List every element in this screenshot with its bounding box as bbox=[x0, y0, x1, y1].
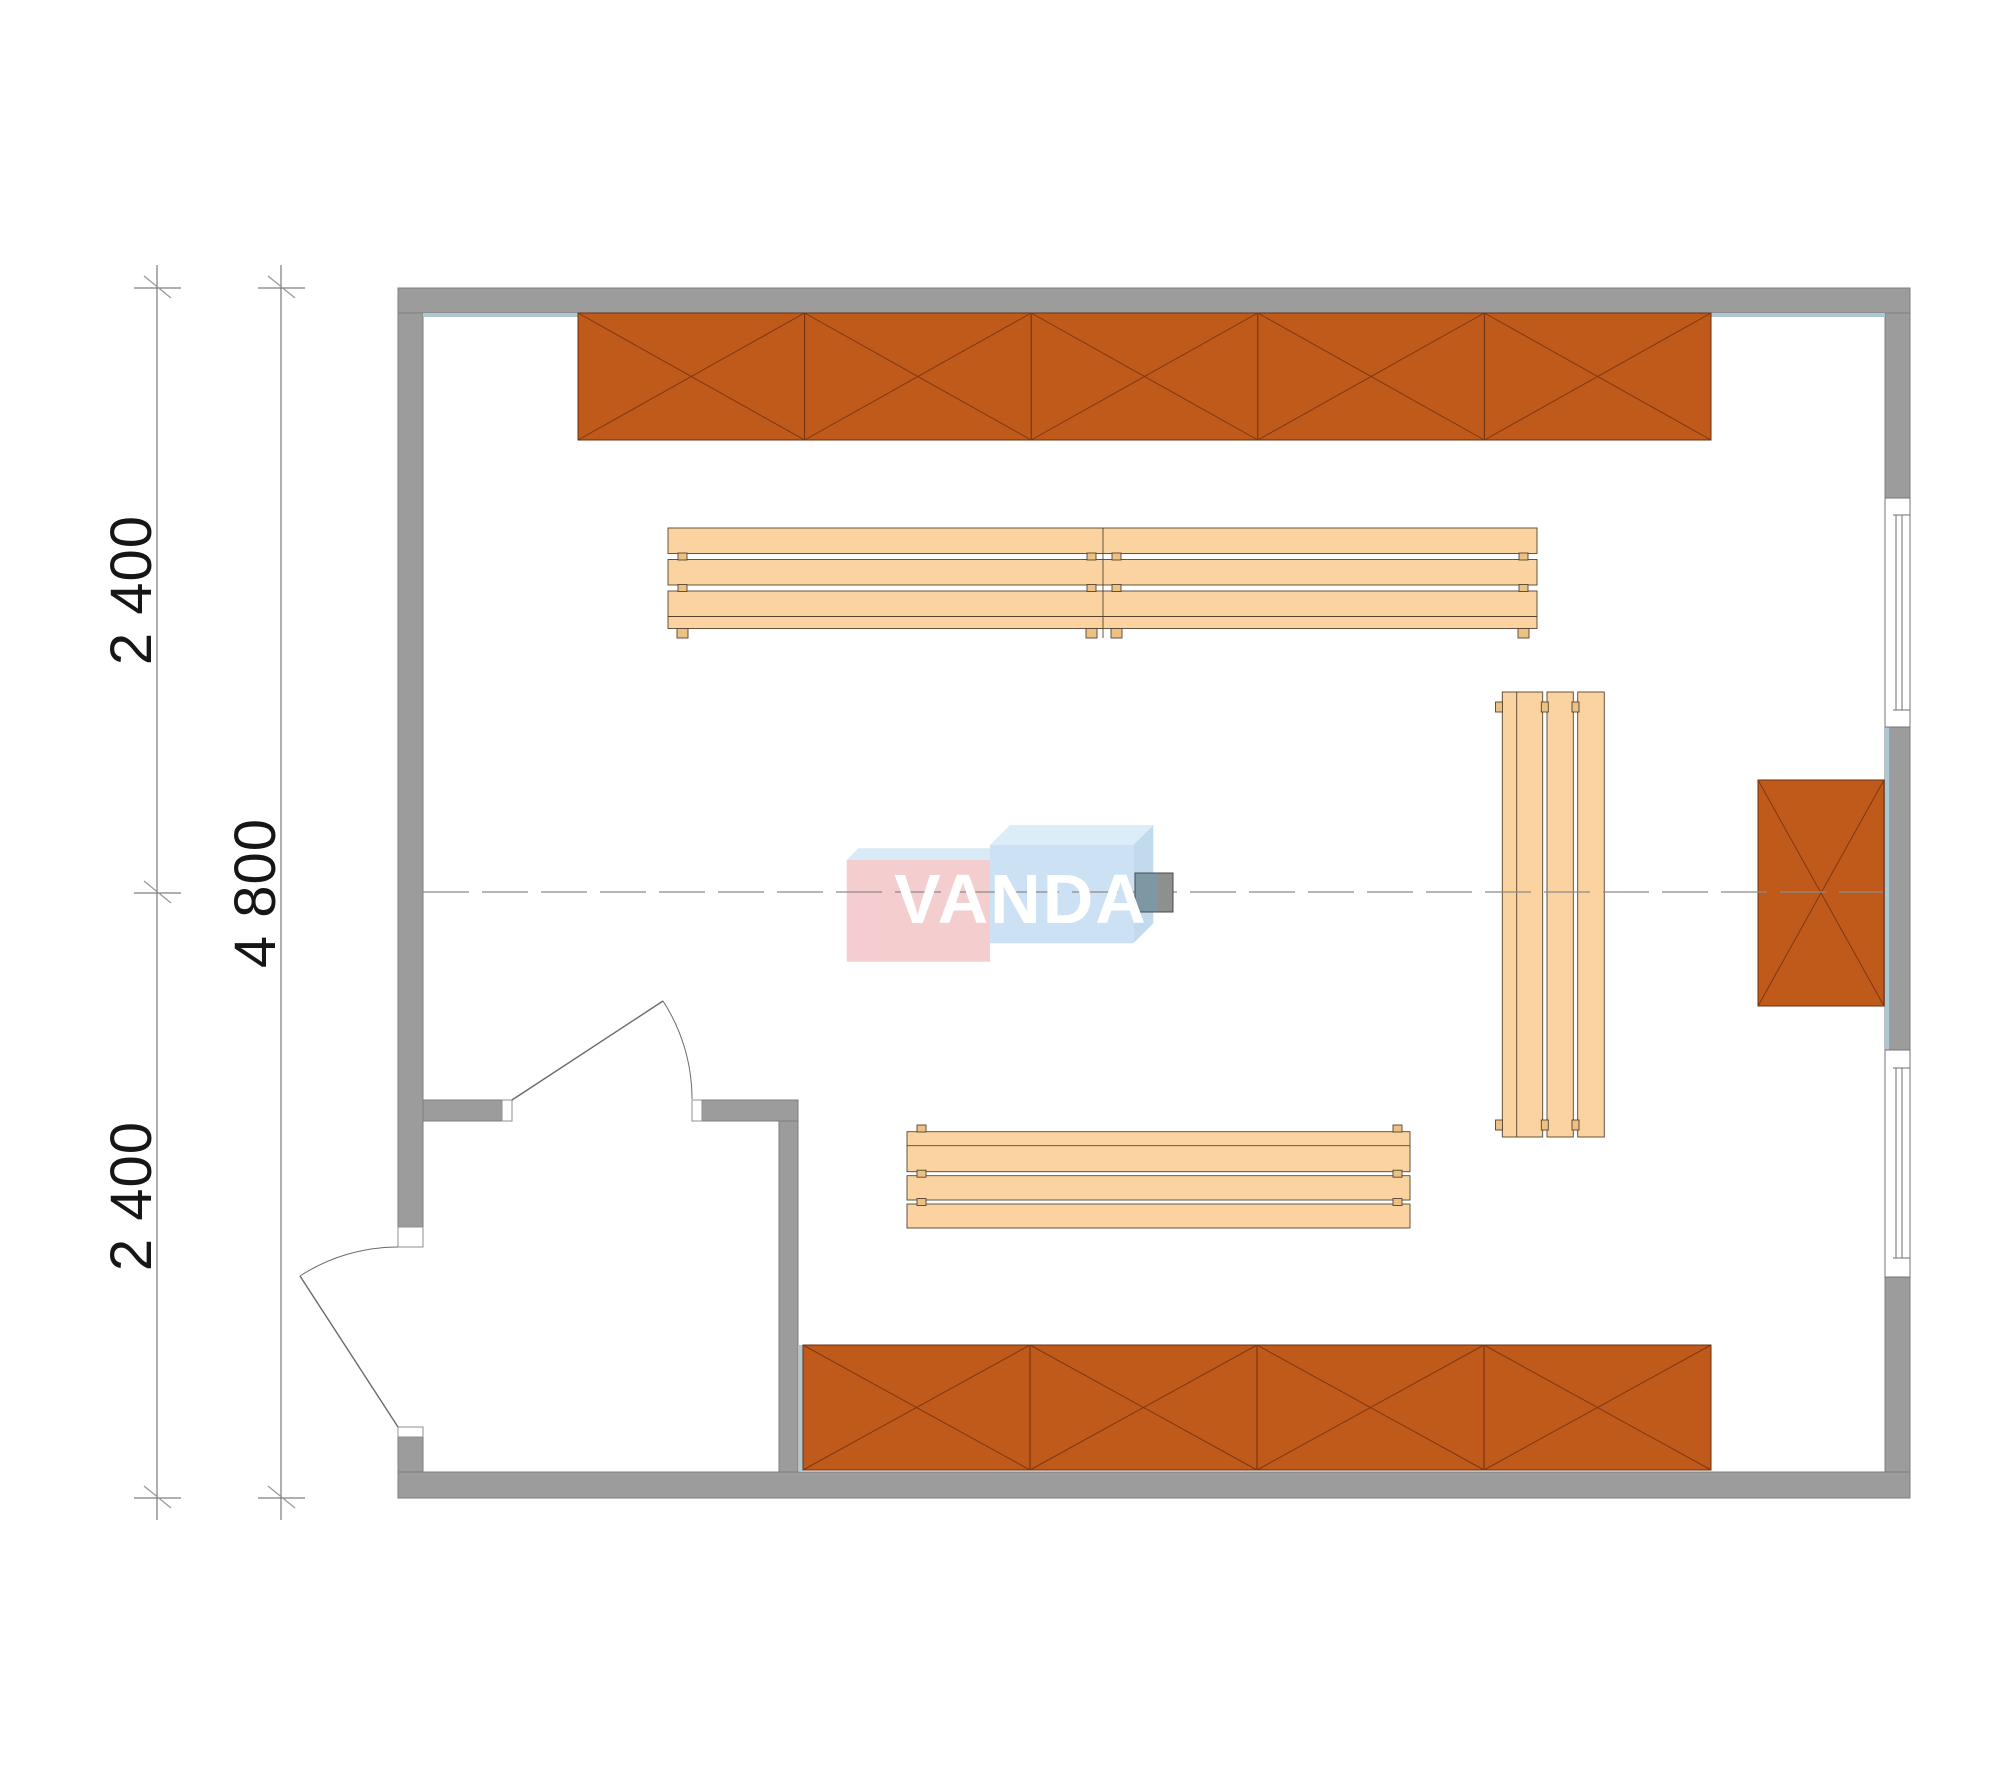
wall-right-upper bbox=[1885, 313, 1910, 498]
dimension-label-bottom-2400: 2 400 bbox=[21, 1086, 241, 1306]
bench-top-slat-2 bbox=[668, 560, 1537, 586]
jamb-exterior-door-top bbox=[398, 1227, 423, 1247]
bench-vertical bbox=[1496, 692, 1605, 1137]
wall-vestibule-top-left bbox=[423, 1100, 502, 1121]
bench-top-slat-1 bbox=[668, 528, 1537, 554]
jamb-exterior-door-bottom bbox=[398, 1427, 423, 1437]
wall-vestibule-right bbox=[779, 1121, 798, 1472]
bench-bottom-slat-3 bbox=[907, 1204, 1410, 1228]
bench-top-slat-3-apron bbox=[668, 591, 1537, 629]
wall-left-upper bbox=[398, 313, 423, 1227]
door-jambs bbox=[398, 1100, 702, 1437]
right-wall-shelf bbox=[1758, 780, 1884, 1006]
interior-door-leaf bbox=[512, 1001, 663, 1100]
liner-vestibule-wall bbox=[799, 1345, 803, 1472]
jamb-interior-door-left bbox=[502, 1100, 512, 1121]
dimension-label-top-2400: 2 400 bbox=[21, 480, 241, 700]
floor-plan-canvas: 2 400 4 800 2 400 VANDA bbox=[0, 0, 2000, 1786]
wall-vestibule-top-right bbox=[702, 1100, 798, 1121]
exterior-door-swing-arc bbox=[300, 1247, 398, 1276]
wall-bottom bbox=[398, 1472, 1910, 1498]
dimension-label-total-4800: 4 800 bbox=[145, 783, 365, 1003]
bench-bottom-slat-2 bbox=[907, 1176, 1410, 1200]
doors bbox=[300, 1001, 692, 1427]
window-upper bbox=[1885, 498, 1910, 727]
bench-vertical-slat-2 bbox=[1547, 692, 1573, 1137]
wall-right-lower bbox=[1885, 1277, 1910, 1472]
bench-vertical-apron-slat-1 bbox=[1502, 692, 1542, 1137]
watermark-vanda-text: VANDA bbox=[871, 856, 1171, 942]
top-shelf-row bbox=[578, 313, 1711, 440]
bench-vertical-slat-3 bbox=[1578, 692, 1605, 1137]
bench-bottom-apron-slat-1 bbox=[907, 1132, 1410, 1172]
interior-door-swing-arc bbox=[663, 1001, 692, 1099]
exterior-door-leaf bbox=[300, 1276, 398, 1427]
wall-top bbox=[398, 288, 1910, 313]
jamb-interior-door-right bbox=[692, 1100, 702, 1121]
window-lower bbox=[1885, 1050, 1910, 1277]
logo-blue-box-top-face bbox=[990, 825, 1153, 845]
liner-right-pier bbox=[1885, 727, 1889, 1050]
bottom-shelf-row bbox=[803, 1345, 1711, 1470]
wall-left-lower-stub bbox=[398, 1437, 423, 1472]
bench-top bbox=[668, 528, 1537, 638]
bench-bottom bbox=[907, 1125, 1410, 1228]
